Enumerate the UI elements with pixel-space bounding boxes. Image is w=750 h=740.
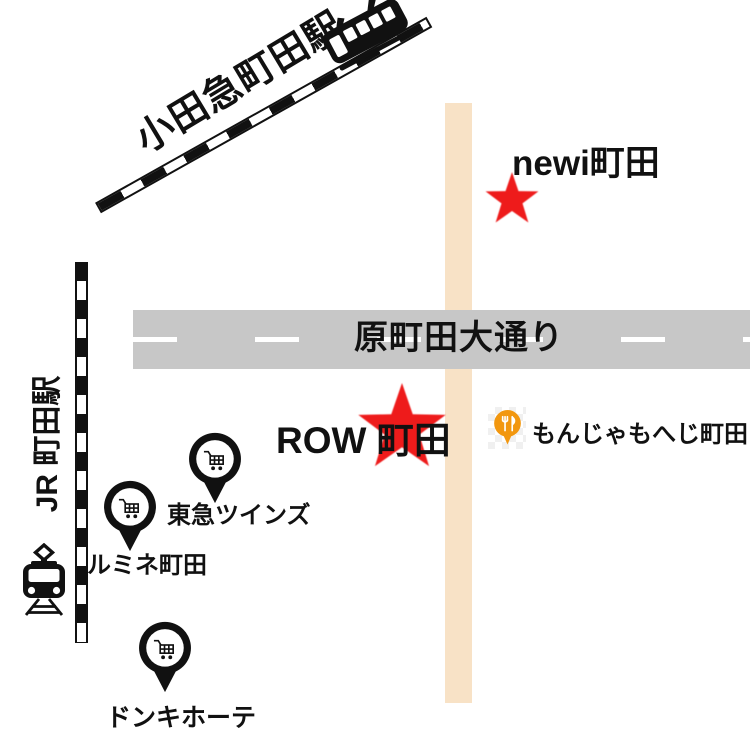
main-street-label: 原町田大通り [354,319,564,358]
donki-cart-pin-icon [136,620,194,695]
tokyu-twins-cart-pin-icon [186,431,244,506]
jr-station-label: JR 町田駅 [31,364,65,524]
lumine-cart-pin-icon [101,479,159,554]
monja-moheji-label: もんじゃもへじ町田 [532,421,748,449]
don-quijote-label: ドンキホーテ [106,704,256,733]
jr-railway-track [75,262,88,643]
main-street-road: 原町田大通り [133,310,750,369]
restaurant-pin-icon [492,409,523,446]
train-front-icon [18,543,70,617]
tokyu-twins-label: 東急ツインズ [167,502,311,530]
lumine-machida-label: ルミネ町田 [87,552,207,580]
access-map: 原町田大通り 小田急町田駅 JR 町田駅 newi町田 R [0,0,750,740]
newi-machida-label: newi町田 [512,144,660,184]
row-machida-label: ROW 町田 [276,420,451,463]
